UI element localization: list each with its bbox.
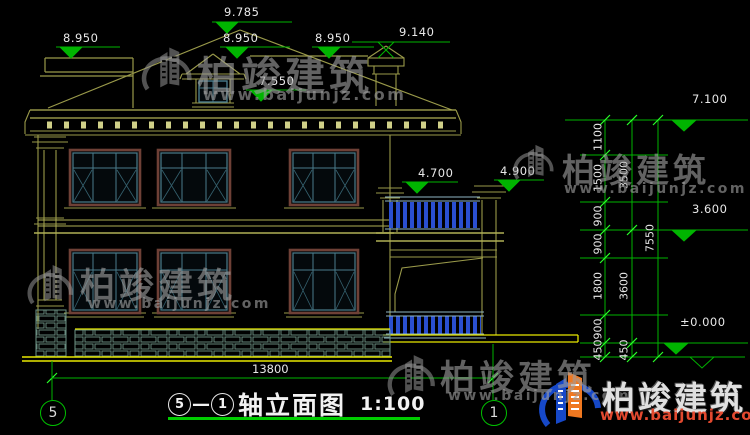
dim-3600: 3600 bbox=[619, 272, 630, 300]
watermark-url-left: www.baijunjz.com bbox=[88, 296, 271, 312]
title-underline bbox=[168, 417, 420, 420]
watermark-url-top: www.baijunjz.com bbox=[203, 85, 406, 104]
dim-7550: 7550 bbox=[645, 224, 656, 252]
title-dash: — bbox=[192, 394, 210, 415]
stone-base bbox=[22, 310, 392, 361]
elev-chimney: 9.140 bbox=[399, 27, 434, 39]
elev-floor2-right: 3.600 bbox=[692, 204, 727, 216]
balcony-porch bbox=[376, 186, 578, 342]
title-axis-to: 1 bbox=[211, 393, 234, 416]
watermark-url-right: www.baijunjz.com bbox=[564, 181, 747, 197]
title-scale: 1:100 bbox=[360, 393, 425, 415]
axis-bubble-5: 5 bbox=[40, 400, 66, 426]
ground-line bbox=[22, 357, 392, 361]
dim-900a: 900 bbox=[593, 206, 604, 227]
elevation-linework bbox=[0, 0, 750, 435]
porch-stair-outline bbox=[395, 258, 483, 312]
eave-cornice bbox=[25, 110, 461, 135]
elev-ridge-left: 8.950 bbox=[63, 33, 98, 45]
dim-900b: 900 bbox=[593, 234, 604, 255]
elev-peak: 9.785 bbox=[224, 7, 259, 19]
dim-13800: 13800 bbox=[252, 364, 289, 376]
dim-450b: 450 bbox=[619, 340, 630, 361]
dim-1800: 1800 bbox=[593, 272, 604, 300]
elev-ridge-right: 8.950 bbox=[315, 33, 350, 45]
elev-eave-right: 7.100 bbox=[692, 94, 727, 106]
elev-ridge-mid: 8.950 bbox=[223, 33, 258, 45]
dim-900c: 900 bbox=[593, 319, 604, 340]
elev-ground-right: ±0.000 bbox=[680, 317, 726, 329]
elev-porch-capital: 4.900 bbox=[500, 166, 535, 178]
elev-balcony-rail: 4.700 bbox=[418, 168, 453, 180]
title-axis-from: 5 bbox=[168, 393, 191, 416]
watermark-url-corner: www.baijunjz.com bbox=[600, 406, 750, 424]
cad-elevation-drawing: 9.785 8.950 8.950 8.950 9.140 7.550 4.70… bbox=[0, 0, 750, 435]
